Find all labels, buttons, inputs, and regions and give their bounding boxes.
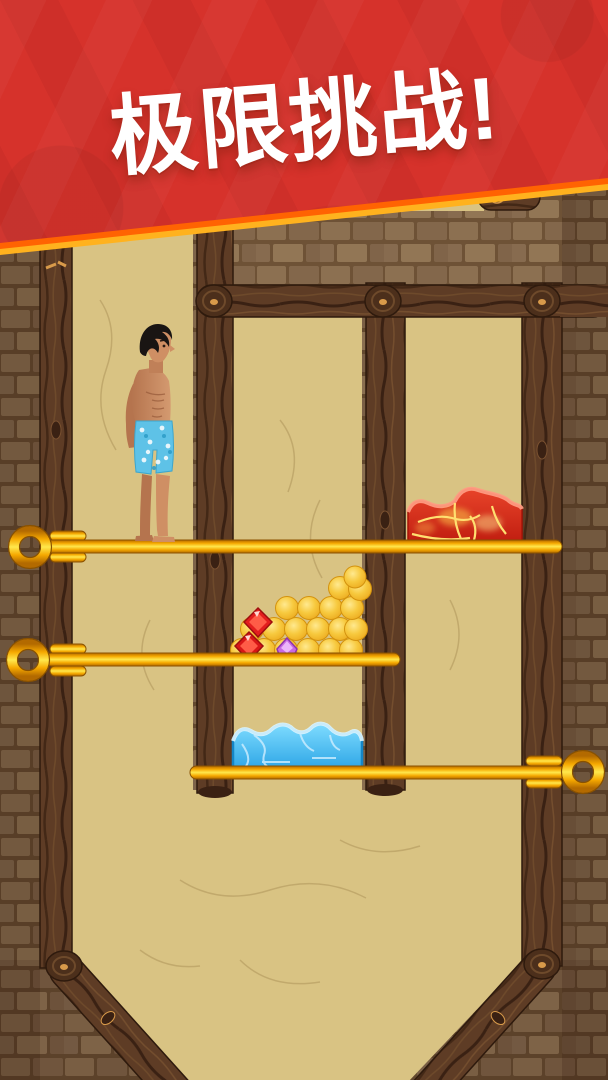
game-screen: 极限挑战! — [0, 0, 608, 1080]
pillar-1 — [40, 185, 72, 968]
man-torso — [132, 368, 171, 423]
banner-title: 极限挑战! — [104, 37, 504, 194]
pillar-3 — [366, 283, 405, 790]
man-front-foot — [152, 536, 175, 542]
man-back-foot — [135, 535, 154, 541]
sand-channel-left — [72, 185, 193, 790]
pillar-4 — [522, 283, 562, 966]
